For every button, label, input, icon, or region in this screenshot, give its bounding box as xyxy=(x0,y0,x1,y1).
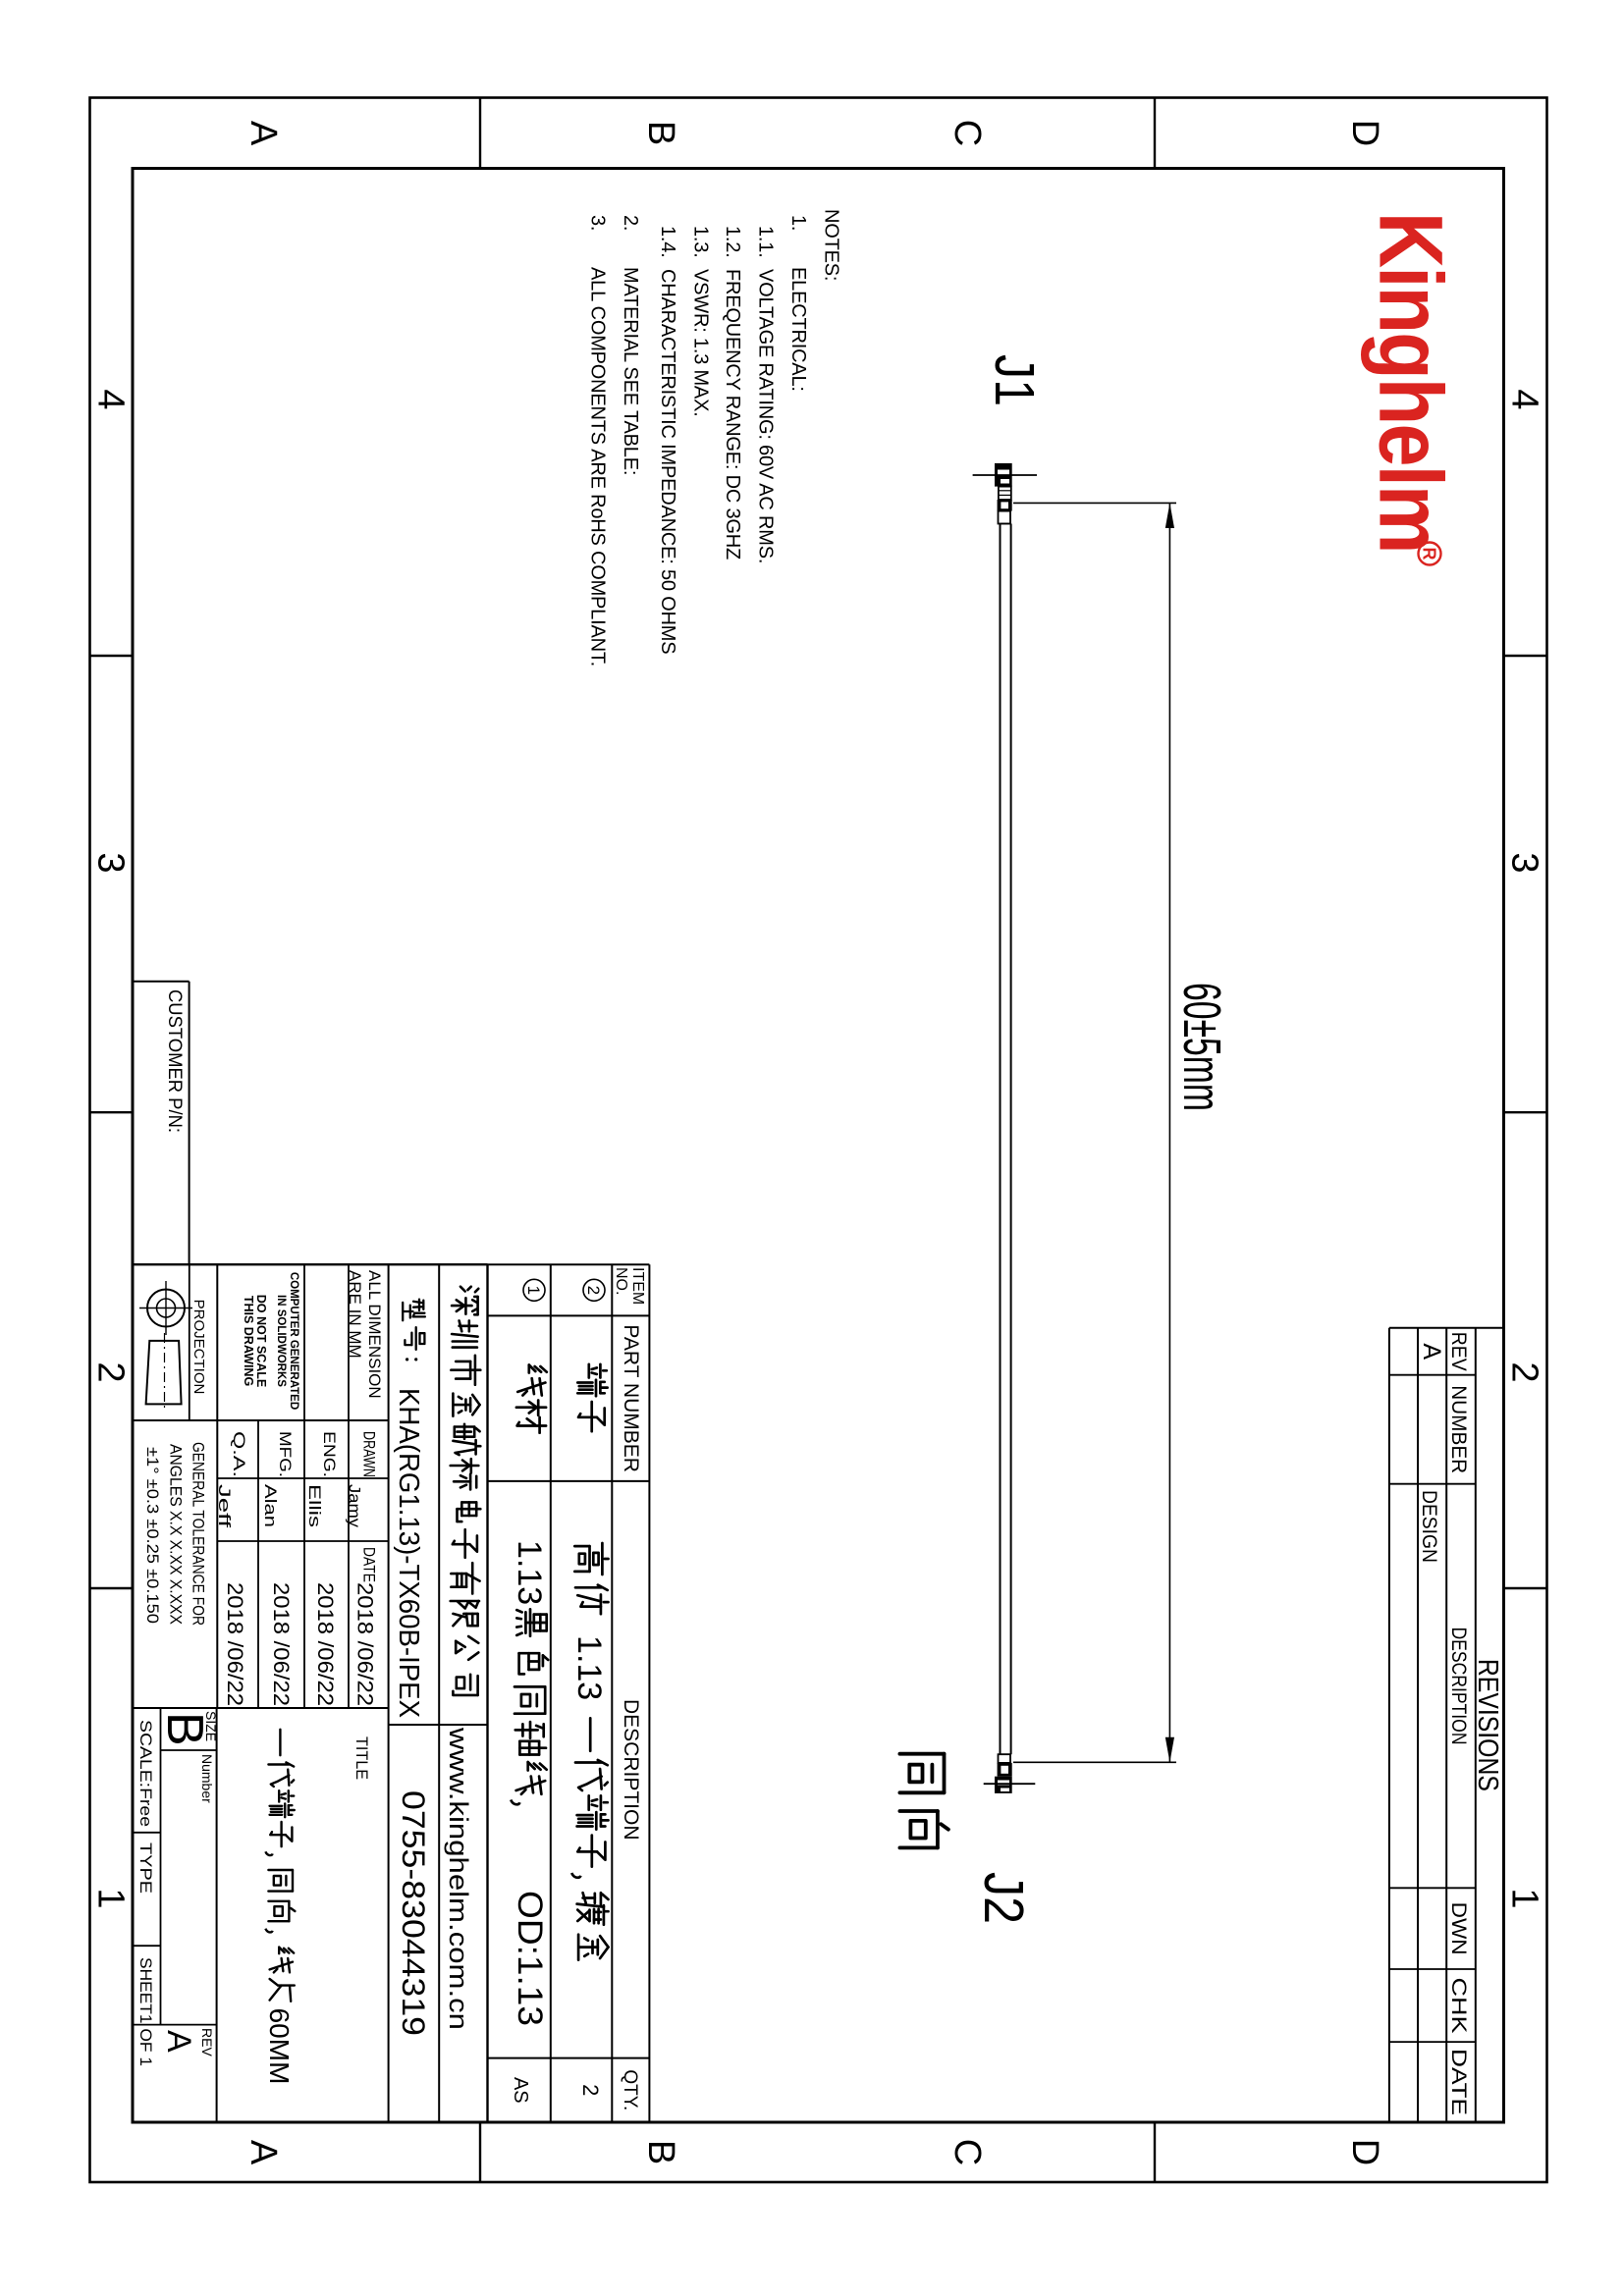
svg-text:2: 2 xyxy=(89,1362,131,1382)
svg-text:2: 2 xyxy=(578,2084,603,2096)
svg-text:GENERAL TOLERANCE FOR: GENERAL TOLERANCE FOR xyxy=(189,1442,208,1626)
svg-text:DRAWN: DRAWN xyxy=(360,1431,379,1477)
svg-text:DESCRIPTION: DESCRIPTION xyxy=(1447,1628,1470,1745)
svg-text:ALL DIMENSION: ALL DIMENSION xyxy=(365,1270,384,1399)
svg-text:PART NUMBER: PART NUMBER xyxy=(620,1324,642,1472)
svg-text:KHA(RG1.13)-TX60B-IPEX: KHA(RG1.13)-TX60B-IPEX xyxy=(393,1388,424,1718)
svg-text:FREQUENCY RANGE: DC 3GHZ: FREQUENCY RANGE: DC 3GHZ xyxy=(722,269,743,560)
svg-text:VOLTAGE RATING: 60V AC RMS.: VOLTAGE RATING: 60V AC RMS. xyxy=(755,269,777,563)
svg-text:Jamy: Jamy xyxy=(346,1484,364,1528)
svg-text:ITEM: ITEM xyxy=(629,1267,646,1305)
svg-text:2018 /06/22: 2018 /06/22 xyxy=(269,1582,294,1706)
svg-text:Jeff: Jeff xyxy=(215,1484,234,1527)
svg-text:www.kinghelm.com.cn: www.kinghelm.com.cn xyxy=(444,1727,473,2030)
svg-text:B: B xyxy=(156,1712,213,1746)
svg-text:DATE: DATE xyxy=(1447,2049,1470,2115)
svg-text:ALL COMPONENTS ARE RoHS COMPLI: ALL COMPONENTS ARE RoHS COMPLIANT. xyxy=(586,267,608,667)
svg-text:DESCRIPTION: DESCRIPTION xyxy=(620,1699,642,1841)
svg-text:±1° ±0.3 ±0.25 ±0.150: ±1° ±0.3 ±0.25 ±0.150 xyxy=(143,1447,162,1624)
svg-text:REV: REV xyxy=(1447,1332,1470,1371)
svg-text:A: A xyxy=(160,2030,197,2053)
svg-text:NO.: NO. xyxy=(613,1267,629,1295)
svg-text:NUMBER: NUMBER xyxy=(1447,1385,1470,1473)
svg-text:1.1.: 1.1. xyxy=(755,226,777,258)
svg-text:1.3.: 1.3. xyxy=(690,226,712,258)
svg-text:1.4.: 1.4. xyxy=(657,226,678,258)
svg-text:Number: Number xyxy=(199,1754,215,1803)
svg-text:4: 4 xyxy=(1504,389,1545,409)
svg-text:4: 4 xyxy=(89,389,131,409)
svg-text:QTY.: QTY. xyxy=(620,2069,640,2110)
svg-text:ANGLES X.X X.XX X.XXX: ANGLES X.X X.XX X.XXX xyxy=(166,1444,185,1625)
svg-text:ENG.: ENG. xyxy=(320,1431,339,1477)
svg-text:MATERIAL SEE TABLE:: MATERIAL SEE TABLE: xyxy=(620,267,641,475)
svg-text:C: C xyxy=(947,120,988,146)
svg-text:NOTES:: NOTES: xyxy=(821,209,842,281)
svg-text:2.: 2. xyxy=(620,215,641,231)
svg-text:1: 1 xyxy=(524,1286,543,1295)
svg-text:ELECTRICAL:: ELECTRICAL: xyxy=(787,267,809,392)
svg-text:D: D xyxy=(1344,2139,1385,2165)
svg-text:MFG.: MFG. xyxy=(276,1431,295,1477)
svg-text:1.2.: 1.2. xyxy=(722,226,743,258)
svg-text:CHARACTERISTIC IMPEDANCE: 50 O: CHARACTERISTIC IMPEDANCE: 50 OHMS xyxy=(657,269,678,654)
svg-text:DO NOT SCALE: DO NOT SCALE xyxy=(254,1295,268,1387)
svg-text:B: B xyxy=(640,121,681,145)
svg-text:D: D xyxy=(1344,120,1385,146)
svg-text:60MM: 60MM xyxy=(264,2008,295,2085)
svg-text:C: C xyxy=(947,2139,988,2165)
svg-text:VSWR: 1.3 MAX.: VSWR: 1.3 MAX. xyxy=(690,269,712,417)
svg-text:REV: REV xyxy=(199,2028,215,2056)
svg-text:OD:1.13: OD:1.13 xyxy=(511,1891,549,2026)
svg-text:COMPUTER GENERATED: COMPUTER GENERATED xyxy=(288,1272,299,1410)
svg-text:Kinghelm: Kinghelm xyxy=(1360,212,1461,553)
svg-text:3.: 3. xyxy=(586,215,608,231)
svg-text:SCALE:Free: SCALE:Free xyxy=(136,1720,155,1827)
svg-text:TITLE: TITLE xyxy=(352,1736,371,1780)
svg-text:CUSTOMER P/N:: CUSTOMER P/N: xyxy=(164,989,185,1133)
svg-text:DWN: DWN xyxy=(1447,1902,1470,1955)
svg-text:IN SOLIDWORKS: IN SOLIDWORKS xyxy=(275,1295,287,1387)
svg-text:1.13: 1.13 xyxy=(511,1540,548,1605)
svg-text:Q.A.: Q.A. xyxy=(230,1431,248,1477)
svg-text:60±5mm: 60±5mm xyxy=(1172,983,1231,1111)
svg-text:1.13: 1.13 xyxy=(570,1635,608,1700)
svg-text:J1: J1 xyxy=(983,354,1046,406)
svg-text:THIS DRAWING: THIS DRAWING xyxy=(242,1296,255,1386)
svg-text:1: 1 xyxy=(1504,1888,1545,1908)
svg-text:1.: 1. xyxy=(787,215,809,231)
svg-text:3: 3 xyxy=(89,852,131,873)
svg-text:2: 2 xyxy=(1504,1362,1545,1382)
svg-text:2018 /06/22: 2018 /06/22 xyxy=(313,1582,338,1706)
svg-text:2: 2 xyxy=(584,1286,603,1295)
svg-text:ARE IN MM: ARE IN MM xyxy=(346,1270,364,1359)
svg-text:2018 /06/22: 2018 /06/22 xyxy=(223,1582,247,1706)
svg-text:2018 /06/22: 2018 /06/22 xyxy=(353,1582,378,1706)
svg-text:0755-83044319: 0755-83044319 xyxy=(396,1790,431,2036)
svg-text:R: R xyxy=(1420,548,1439,561)
svg-text:PROJECTION: PROJECTION xyxy=(190,1300,207,1395)
svg-text:Alan: Alan xyxy=(261,1484,280,1527)
svg-text:3: 3 xyxy=(1504,852,1545,873)
svg-text:DESIGN: DESIGN xyxy=(1418,1490,1440,1563)
svg-text:J2: J2 xyxy=(972,1872,1035,1924)
svg-text:AS: AS xyxy=(510,2077,531,2104)
svg-text:A: A xyxy=(243,2140,284,2165)
svg-text:SHEET1 OF 1: SHEET1 OF 1 xyxy=(136,1957,155,2066)
svg-text:A: A xyxy=(243,121,284,146)
svg-text:DATE: DATE xyxy=(360,1547,379,1582)
svg-text:Ellis: Ellis xyxy=(305,1484,324,1527)
svg-text:1: 1 xyxy=(89,1888,131,1908)
svg-text:B: B xyxy=(640,2140,681,2164)
svg-text:CHK: CHK xyxy=(1447,1978,1470,2034)
svg-text:TYPE: TYPE xyxy=(136,1842,155,1894)
svg-text:REVISIONS: REVISIONS xyxy=(1472,1659,1503,1791)
svg-text:A: A xyxy=(1418,1343,1445,1360)
